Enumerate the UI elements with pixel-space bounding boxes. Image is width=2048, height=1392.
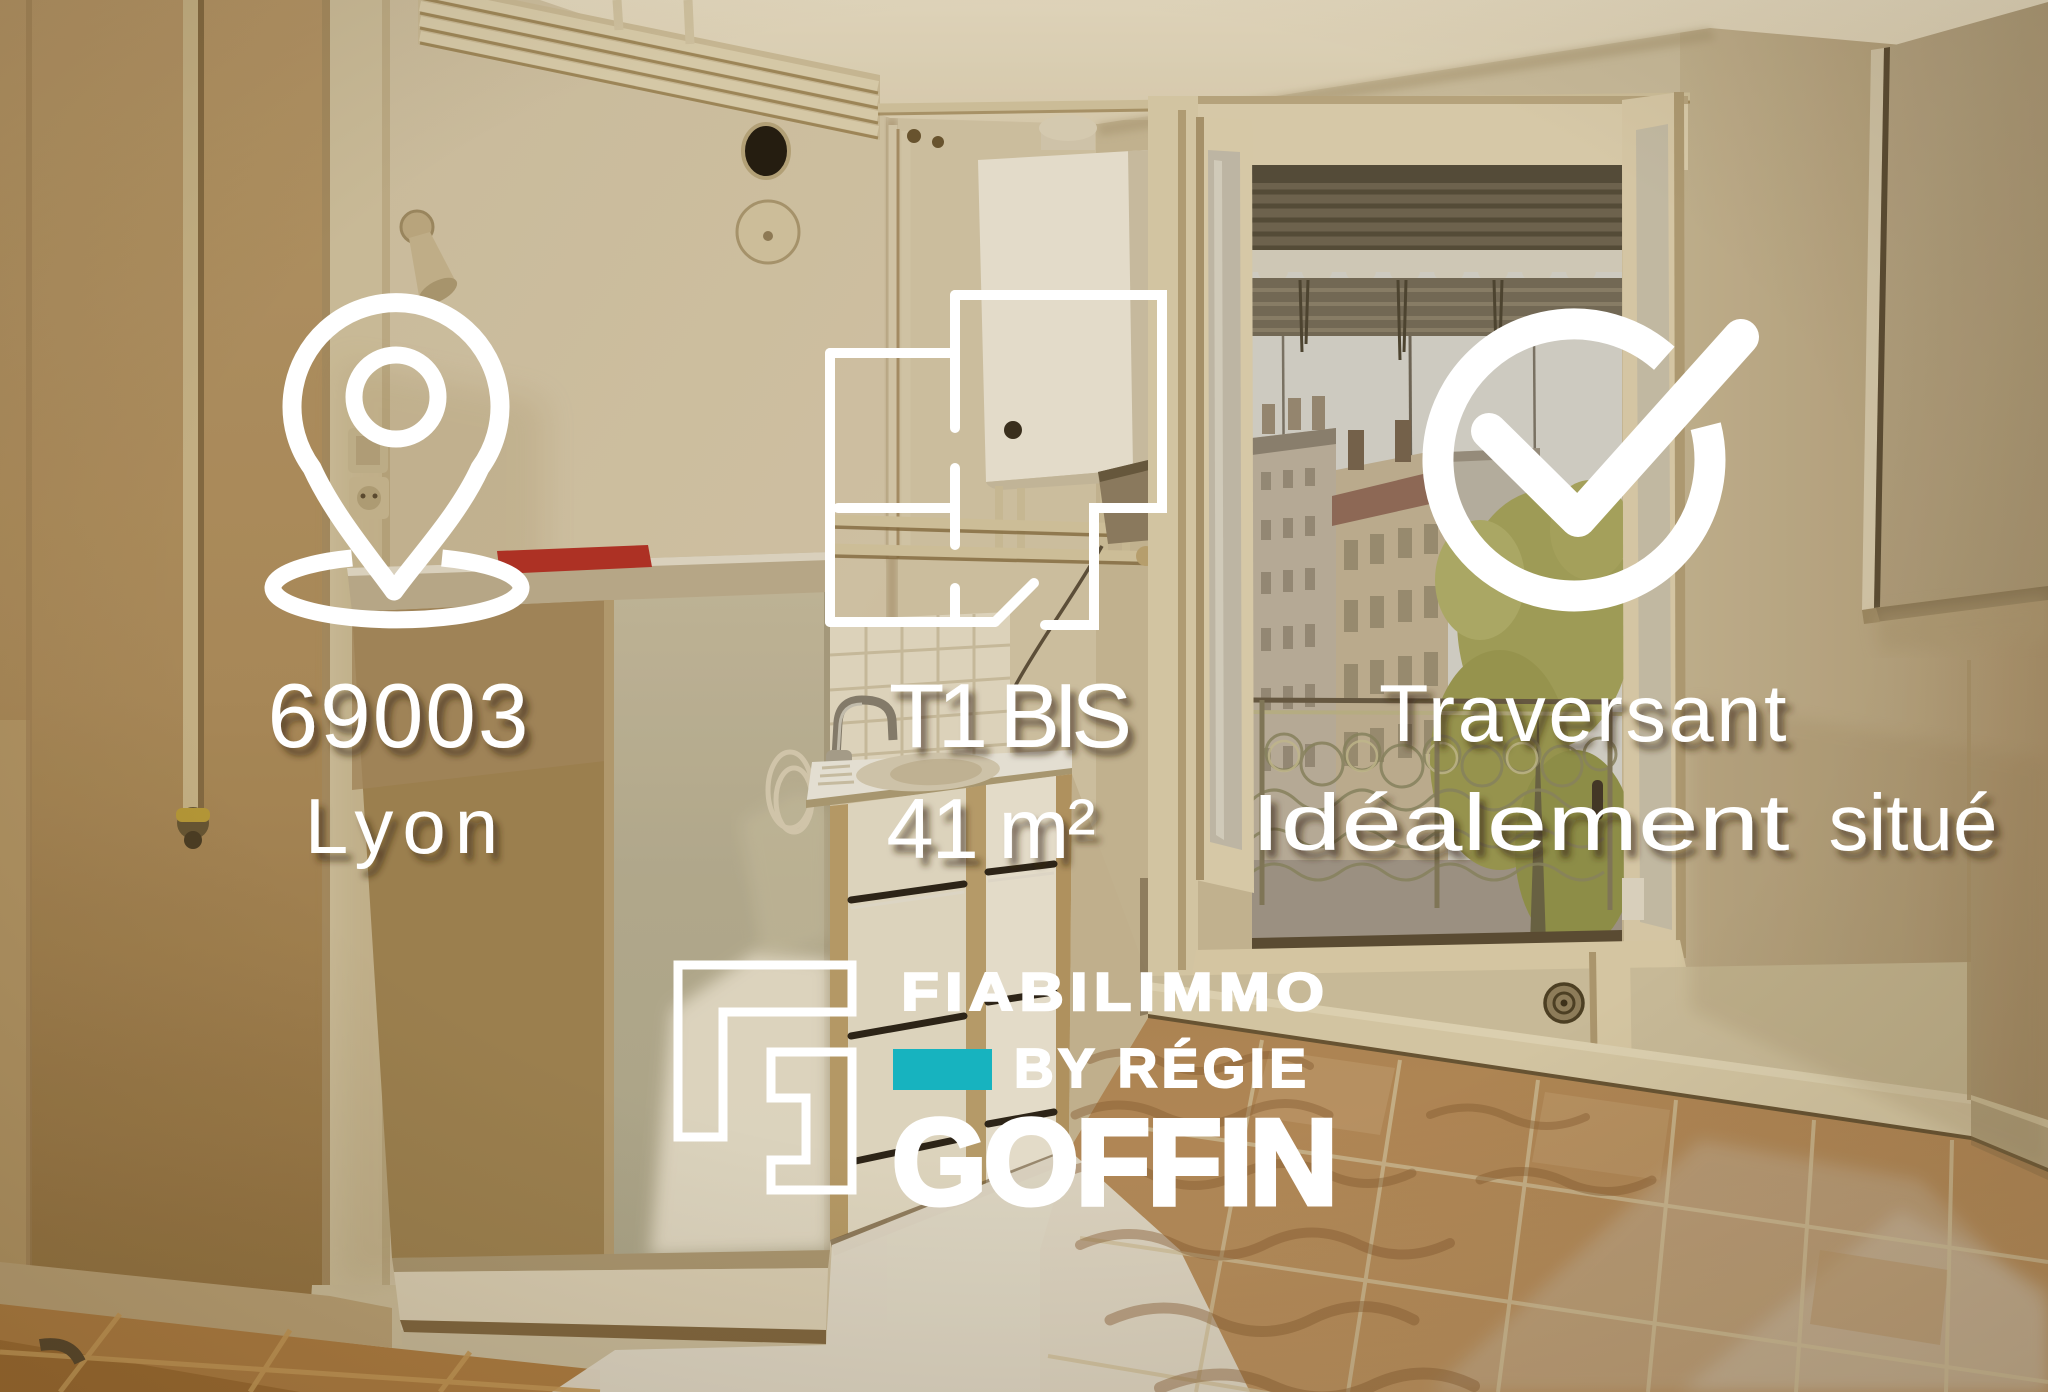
svg-text:69003: 69003	[267, 666, 530, 767]
svg-text:41 m²: 41 m²	[886, 782, 1094, 877]
svg-text:T1 BIS: T1 BIS	[889, 666, 1128, 767]
svg-text:Idéalement: Idéalement	[1251, 778, 1790, 867]
svg-text:FIABILIMMO: FIABILIMMO	[902, 963, 1331, 1022]
svg-text:BY RÉGIE: BY RÉGIE	[1014, 1037, 1310, 1099]
svg-text:Lyon: Lyon	[305, 782, 507, 870]
svg-text:situé: situé	[1829, 778, 1998, 867]
svg-text:Traversant: Traversant	[1379, 669, 1789, 759]
svg-text:GOFFIN: GOFFIN	[892, 1094, 1335, 1230]
